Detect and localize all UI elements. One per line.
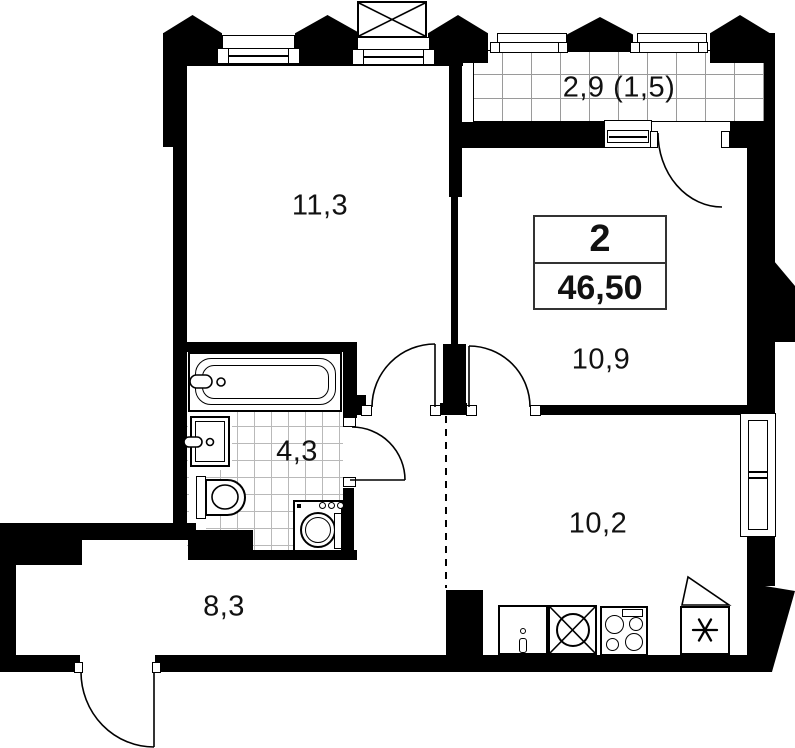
wall-divider-thick bbox=[449, 60, 462, 197]
kitchen-sink-bowl bbox=[556, 613, 590, 647]
wall-left-main bbox=[173, 147, 187, 523]
door-jamb bbox=[721, 131, 730, 148]
bathtub-basin bbox=[202, 365, 329, 399]
kitchen-counter-knob bbox=[520, 628, 526, 634]
room-label-hallway: 8,3 bbox=[203, 591, 245, 624]
wall-pier bbox=[295, 15, 360, 63]
wall-kitchen-stub bbox=[446, 590, 483, 672]
entrance-door-arc bbox=[81, 672, 154, 747]
refrigerator-door-flap bbox=[682, 577, 729, 605]
wall-door-stub bbox=[443, 344, 466, 407]
window-right-wall-bar bbox=[748, 477, 768, 479]
window-frame bbox=[630, 42, 708, 53]
wall-bathroom-bottom bbox=[250, 550, 357, 560]
door-jamb bbox=[343, 477, 356, 487]
living-room-door-arc bbox=[372, 344, 435, 407]
window-frame bbox=[490, 42, 568, 53]
wall-pier bbox=[567, 17, 633, 52]
room-label-living: 11,3 bbox=[292, 190, 348, 223]
total-area: 46,50 bbox=[535, 264, 665, 310]
washing-machine-drawer bbox=[334, 513, 342, 549]
window-cap bbox=[423, 49, 435, 65]
bathroom-door-arc bbox=[352, 427, 405, 480]
door-jamb bbox=[361, 405, 372, 416]
window-cap bbox=[630, 42, 640, 53]
door-jamb bbox=[343, 417, 356, 427]
wall-bathroom-right-upper bbox=[343, 352, 357, 418]
wall-door-stub-base bbox=[440, 403, 467, 415]
window-cap bbox=[217, 48, 229, 64]
stove-panel bbox=[622, 609, 643, 617]
stove-burner bbox=[605, 615, 624, 634]
refrigerator bbox=[680, 606, 730, 655]
washing-machine-button bbox=[297, 504, 301, 508]
wall-right-bump bbox=[747, 262, 795, 342]
air-conditioner-box bbox=[357, 1, 427, 38]
washing-machine-knob bbox=[328, 502, 335, 509]
wall-right-2 bbox=[747, 342, 775, 414]
balcony-door-arc bbox=[658, 133, 722, 207]
kitchen-counter-handle bbox=[519, 638, 527, 653]
window-right-wall-inner bbox=[748, 420, 768, 530]
wall-under-balcony bbox=[462, 122, 608, 148]
window-frame-line bbox=[229, 55, 288, 57]
toilet bbox=[205, 479, 246, 516]
room-label-bedroom: 10,9 bbox=[572, 344, 630, 377]
stove-burner bbox=[625, 633, 643, 651]
wall-hall-block bbox=[188, 530, 253, 560]
wall-bathroom-top bbox=[173, 342, 357, 352]
washing-machine-door-inner bbox=[305, 517, 331, 543]
balcony-window-unit-line bbox=[609, 136, 647, 138]
wall-corner-top-right bbox=[764, 33, 775, 149]
floor-plan: 2 46,50 11,3 2,9 (1,5) 10,9 4,3 10,2 8,3 bbox=[0, 0, 795, 748]
room-label-kitchen: 10,2 bbox=[569, 508, 627, 541]
door-jamb bbox=[466, 405, 477, 416]
bedroom-door-arc bbox=[469, 346, 530, 407]
washing-machine-knob bbox=[319, 502, 326, 509]
wall-left-upper bbox=[163, 33, 187, 147]
stove-burner bbox=[629, 617, 643, 631]
stove-burner bbox=[606, 638, 619, 651]
window-frame-line bbox=[364, 56, 423, 58]
wall-right-1 bbox=[747, 147, 775, 265]
wall-pier bbox=[428, 15, 488, 63]
door-jamb bbox=[74, 662, 83, 673]
window-cap bbox=[490, 42, 500, 53]
title-block: 2 46,50 bbox=[533, 215, 667, 310]
door-jamb bbox=[530, 405, 541, 416]
window-right-wall-bar bbox=[748, 471, 768, 473]
wall-right-3 bbox=[747, 536, 775, 586]
rooms-count: 2 bbox=[535, 217, 665, 264]
wall-bottom-left bbox=[0, 655, 80, 672]
door-jamb bbox=[430, 405, 441, 416]
window-cap bbox=[352, 49, 364, 65]
room-label-balcony: 2,9 (1,5) bbox=[563, 72, 676, 105]
wall-pier bbox=[710, 15, 770, 63]
window-cap bbox=[698, 42, 708, 53]
wall-divider-thin bbox=[451, 195, 458, 345]
door-jamb bbox=[650, 131, 658, 148]
room-label-bathroom: 4,3 bbox=[276, 436, 318, 469]
wall-left-bottom bbox=[0, 540, 16, 672]
door-jamb bbox=[152, 662, 161, 673]
window-cap bbox=[558, 42, 568, 53]
wall-bedroom-bottom bbox=[533, 405, 747, 415]
wash-basin-inner bbox=[195, 421, 225, 462]
window-cap bbox=[288, 48, 300, 64]
